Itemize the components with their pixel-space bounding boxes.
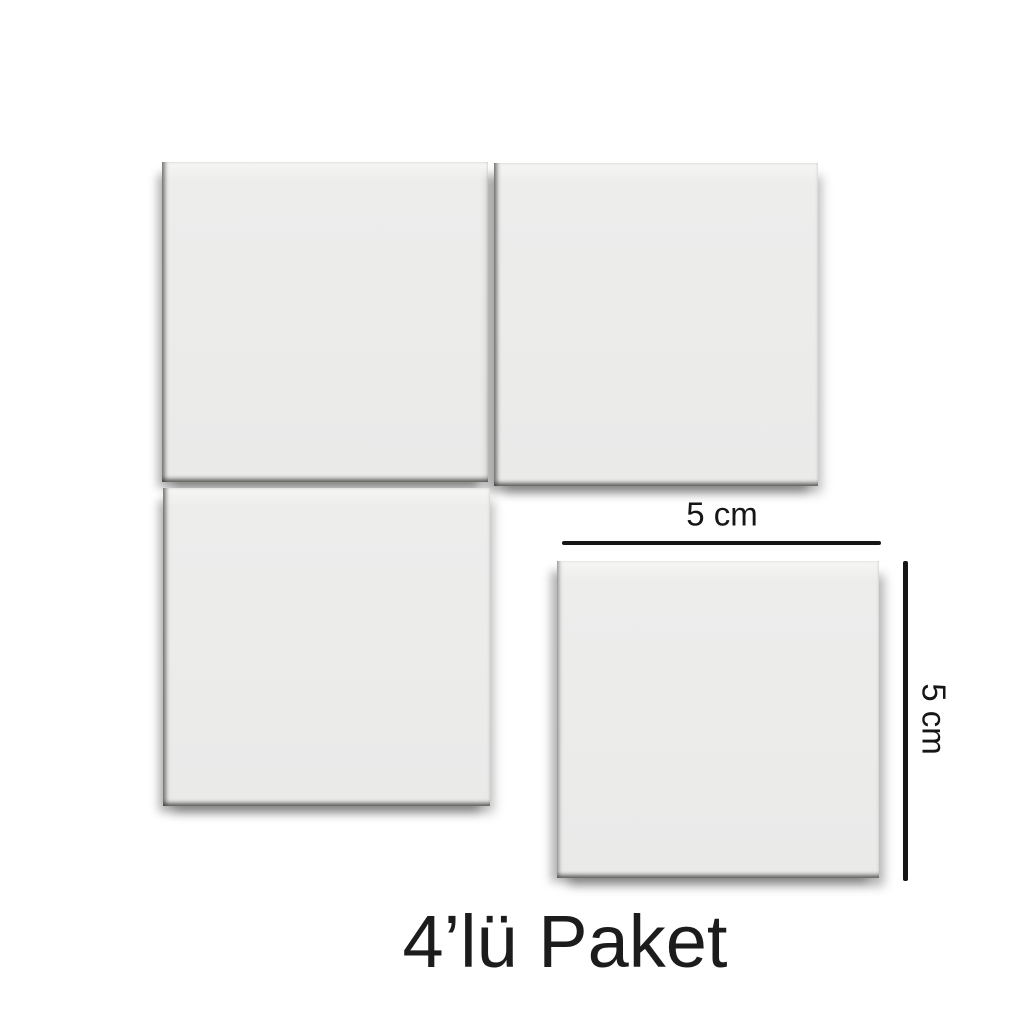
height-dimension-label: 5 cm — [918, 683, 951, 755]
product-square-top-left — [162, 162, 488, 482]
product-square-bottom-left — [163, 488, 490, 806]
product-image: 5 cm 5 cm 4’lü Paket — [0, 0, 1024, 1024]
product-square-bottom-right — [557, 561, 879, 878]
height-dimension-line — [903, 561, 908, 881]
width-dimension-line — [562, 541, 881, 545]
width-dimension-label: 5 cm — [686, 498, 758, 531]
product-square-top-right — [494, 163, 818, 486]
pack-caption: 4’lü Paket — [403, 905, 728, 979]
